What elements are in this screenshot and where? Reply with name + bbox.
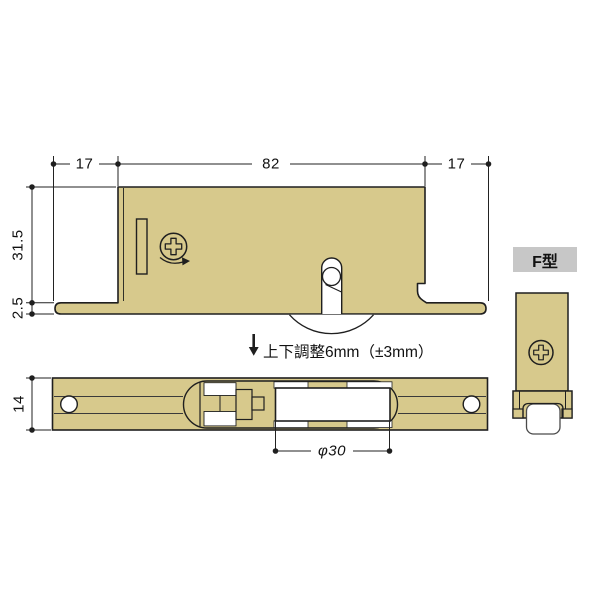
type-label: F型 <box>513 247 577 272</box>
screw-hole-left <box>61 396 78 413</box>
dim-label-top-center: 82 <box>262 156 280 173</box>
roller-wheel <box>290 315 374 334</box>
end-view-drawing <box>513 293 572 434</box>
door-roller-diagram <box>0 0 600 600</box>
dim-label-top-left: 17 <box>76 156 94 173</box>
dim-label-top-right: 17 <box>448 156 466 173</box>
screw-hole-right <box>463 396 480 413</box>
adjuster-slot <box>137 219 148 274</box>
wheel-axle <box>323 268 341 286</box>
retaining-tab-bottom <box>308 421 347 428</box>
adjuster-block <box>236 390 252 420</box>
technical-drawing-page: 17 82 17 31.5 2.5 上下調整6mm（±3mm） 14 φ30 F… <box>0 0 600 600</box>
adjustment-note: 上下調整6mm（±3mm） <box>263 340 433 362</box>
phillips-screw-icon-end <box>529 341 553 365</box>
dim-label-plate-width: 14 <box>11 395 28 413</box>
dim-label-roller-diameter: φ30 <box>318 442 346 459</box>
roller-housing-profile <box>55 187 486 314</box>
dim-label-height: 31.5 <box>10 229 27 260</box>
bottom-view-drawing <box>53 378 488 430</box>
roller-window <box>276 388 391 421</box>
side-view-drawing <box>55 187 486 356</box>
adjustment-arrow-icon <box>249 334 259 356</box>
dim-label-lip-thickness: 2.5 <box>10 297 27 319</box>
phillips-screw-icon <box>160 233 186 259</box>
end-view-roller <box>527 404 561 434</box>
